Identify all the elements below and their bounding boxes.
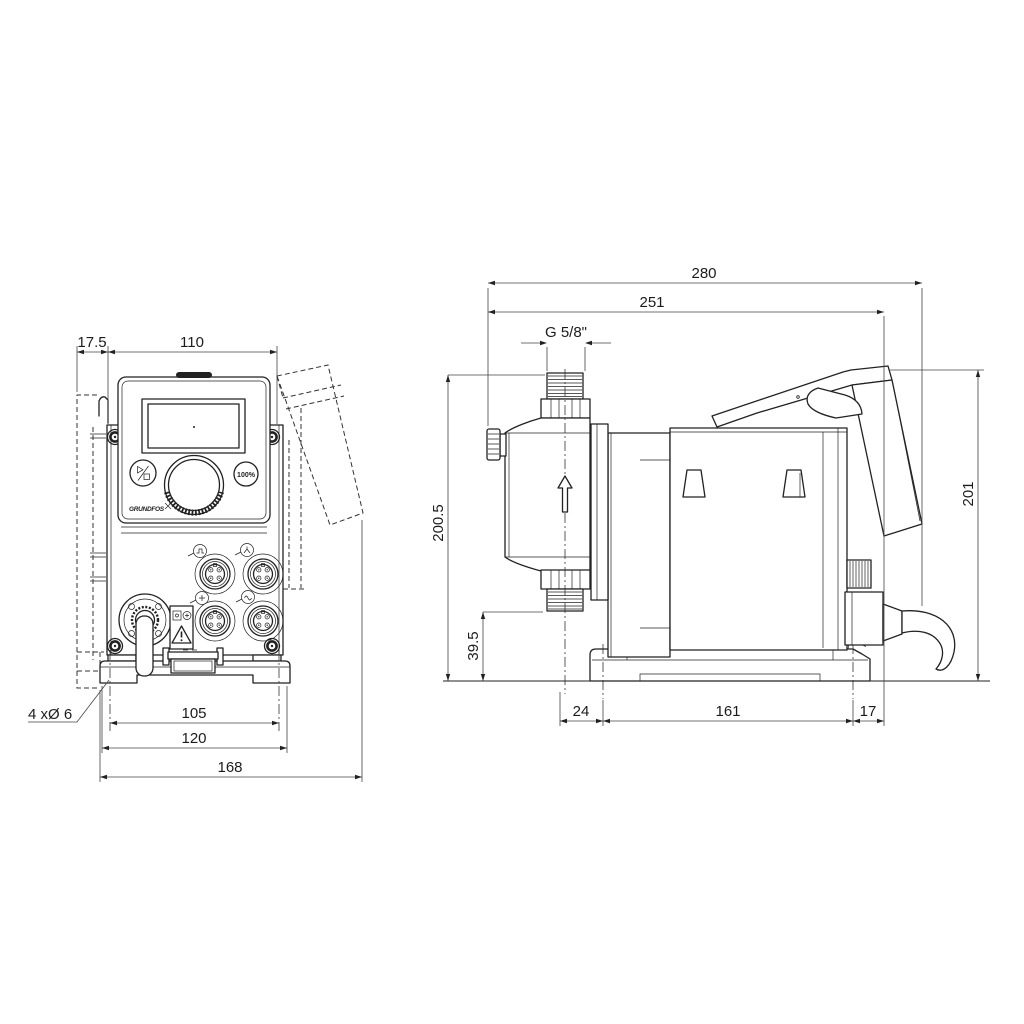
dim-hole-spacing: 105 [181, 705, 206, 722]
click-wheel [165, 456, 224, 515]
head-flange [591, 424, 670, 657]
dim-overall-depth: 280 [691, 265, 716, 282]
dim-suction-height: 39.5 [465, 631, 482, 660]
vent-valve [487, 429, 506, 460]
dim-front-hole-offset: 24 [573, 703, 590, 720]
dim-hood-height: 201 [960, 481, 977, 506]
hole-note: 4 xØ 6 [28, 706, 72, 723]
boost-button-label: 100% [237, 472, 256, 479]
control-panel: 100% GRUNDFOS [118, 372, 270, 533]
mounting-clamp [163, 648, 223, 673]
foot-left [108, 655, 136, 661]
dim-base-hole-spacing: 161 [715, 703, 740, 720]
warning-label [170, 606, 193, 649]
panel-top-tab [176, 372, 212, 378]
dim-wallplate-offset: 17.5 [77, 334, 106, 351]
hood-hidden-front [277, 365, 363, 589]
gland-body [845, 592, 883, 645]
wall-plate-hidden [77, 395, 108, 688]
gland-cone [883, 604, 902, 641]
mains-cable [136, 616, 153, 676]
drawing-svg: 100% GRUNDFOS [0, 0, 1024, 1024]
dim-overall-width: 168 [217, 759, 242, 776]
mounting-tab [783, 470, 805, 497]
dim-rear-offset: 17 [860, 703, 877, 720]
mounting-tab [683, 470, 705, 497]
side-view: 280 251 G 5/8" 200.5 39.5 201 [430, 265, 990, 726]
dosing-head [487, 369, 590, 694]
discharge-nut [541, 399, 590, 418]
logo-text: GRUNDFOS [129, 506, 165, 513]
pump-dimensional-drawing: 100% GRUNDFOS [0, 0, 1024, 1024]
dim-connection-thread: G 5/8" [545, 324, 587, 341]
power-cable [902, 611, 955, 670]
bracket-hook [99, 397, 108, 423]
dim-plate-width: 120 [181, 730, 206, 747]
dim-housing-width: 110 [180, 334, 204, 351]
screw-icon [108, 639, 123, 654]
dim-total-height: 200.5 [430, 504, 447, 542]
dim-depth-to-plug: 251 [639, 294, 664, 311]
front-view: 100% GRUNDFOS [28, 334, 363, 782]
clamp-section [608, 433, 670, 657]
display-dot [193, 426, 195, 428]
suction-nut [541, 570, 590, 589]
pump-body-side [670, 428, 847, 650]
foot-right [253, 655, 281, 661]
